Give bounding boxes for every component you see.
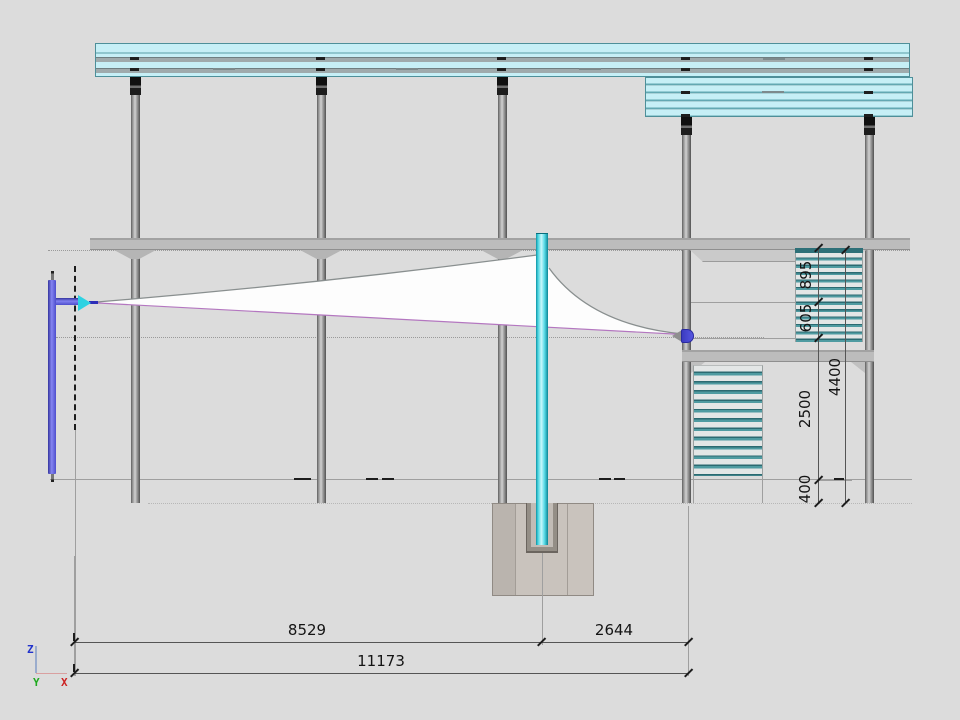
dim-line-vertical-chain[interactable] [818,248,819,503]
dim-label-605[interactable]: 605 [798,288,814,348]
dim-line-8529-2644[interactable] [74,642,688,643]
dim-label-11173[interactable]: 11173 [331,652,431,670]
axis-y-label: Y [33,676,40,689]
wall-post-pin-bottom [51,474,54,482]
dim-line-4400[interactable] [845,248,846,503]
dim-label-8529[interactable]: 8529 [257,621,357,639]
dim-label-2500[interactable]: 2500 [797,379,813,439]
foundation-centerline [542,553,543,645]
wall-arm[interactable] [56,298,79,305]
dim-label-400[interactable]: 400 [797,459,813,519]
wall-post-pin-top [51,271,54,280]
axis-x-line [36,673,67,675]
dim-label-2644[interactable]: 2644 [564,621,664,639]
wall-post[interactable] [48,280,56,474]
dim-line-11173[interactable] [74,673,688,674]
cad-elevation-drawing: 8529 2644 11173 895 605 2500 400 4400 Z … [0,0,960,720]
axis-z-line [35,646,37,673]
axis-x-label: X [61,676,68,689]
sail-corner-arrow [78,295,91,311]
dim-label-4400[interactable]: 4400 [827,347,843,407]
mast[interactable] [536,233,548,545]
axis-z-label: Z [27,643,34,656]
sail-membrane-layer [0,0,960,720]
